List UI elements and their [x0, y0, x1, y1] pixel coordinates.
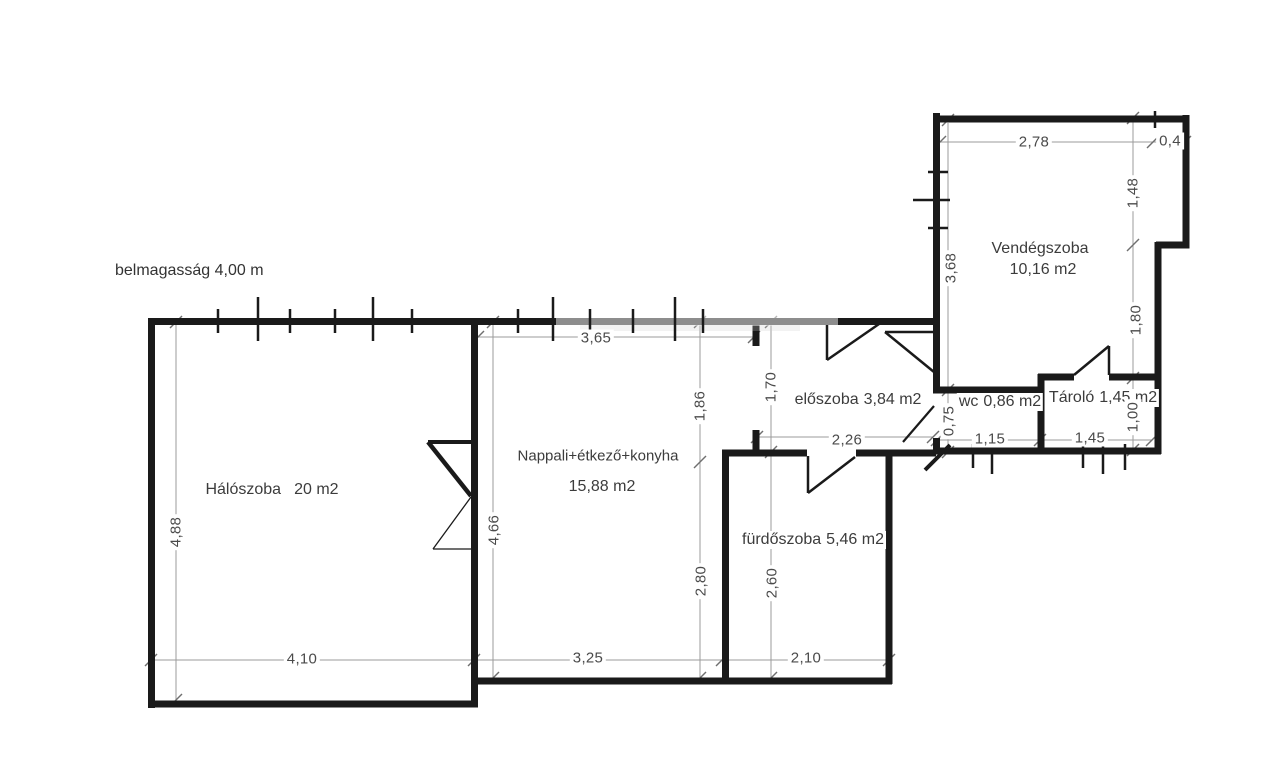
room-label-wc: wc 0,86 m2: [957, 393, 1043, 411]
dim-furdo-width: 2,10: [788, 650, 824, 667]
room-label-eloszoba: előszoba 3,84 m2: [793, 391, 924, 409]
room-name: Tároló: [1049, 389, 1094, 407]
dim-nappali-upper-height: 1,86: [692, 388, 709, 424]
dim-nappali-lower-height: 2,80: [693, 563, 710, 599]
room-name: előszoba: [795, 391, 859, 409]
dim-nappali-bottom-width: 3,25: [570, 650, 606, 667]
room-area: 10,16 m2: [1010, 261, 1077, 279]
dim-eloszoba-width: 2,26: [829, 432, 865, 449]
room-area: 5,46 m2: [826, 531, 884, 549]
room-area: 15,88 m2: [569, 478, 636, 496]
dim-vendeg-top-width: 2,78: [1016, 134, 1052, 151]
room-name: wc: [959, 393, 979, 411]
room-label-furdoszoba: fürdőszoba 5,46 m2: [740, 531, 886, 549]
dim-tarolo-height: 1,00: [1125, 399, 1142, 435]
dim-vendeg-notch-width: 0,4: [1156, 133, 1184, 150]
dim-halo-width: 4,10: [284, 651, 320, 668]
room-area: 20 m2: [294, 481, 338, 499]
dim-furdo-height: 2,60: [764, 565, 781, 601]
door-furdoszoba: [808, 456, 855, 493]
dim-tarolo-width: 1,45: [1072, 430, 1108, 447]
ceiling-height-note: belmagasság 4,00 m: [115, 262, 264, 280]
room-name: Nappali+étkező+konyha: [518, 448, 679, 465]
room-label-haloszoba: Hálószoba 20 m2: [203, 481, 340, 499]
dim-wc-height: 0,75: [941, 403, 958, 439]
dim-nappali-height: 4,66: [486, 512, 503, 548]
dim-halo-height: 4,88: [168, 514, 185, 550]
dim-wc-width: 1,15: [972, 431, 1008, 448]
room-area-nappali: 15,88 m2: [567, 478, 638, 496]
dim-vendeg-right-upper: 1,48: [1125, 175, 1142, 211]
room-name: Vendégszoba: [992, 240, 1089, 258]
room-area-vendegszoba: 10,16 m2: [1008, 261, 1079, 279]
dim-nappali-top-width: 3,65: [578, 330, 614, 347]
floor-plan: belmagasság 4,00 m Hálószoba 20 m2 Nappa…: [0, 0, 1280, 778]
room-label-nappali: Nappali+étkező+konyha: [516, 448, 681, 465]
wall-ticks: [218, 111, 1155, 474]
watermark-smudge: [556, 312, 838, 326]
room-label-vendegszoba: Vendégszoba: [990, 240, 1091, 258]
room-name: Hálószoba: [205, 481, 281, 499]
room-label-tarolo: Tároló 1,45 m2: [1047, 389, 1159, 407]
door-haloszoba: [428, 442, 471, 549]
room-area: 0,86 m2: [983, 393, 1041, 411]
door-eloszoba-entry: [827, 324, 879, 360]
room-name: fürdőszoba: [742, 531, 821, 549]
room-area: 3,84 m2: [864, 391, 922, 409]
dim-vendeg-left-height: 3,68: [943, 250, 960, 286]
dim-eloszoba-height: 1,70: [763, 369, 780, 405]
door-tarolo: [1074, 346, 1109, 375]
dim-vendeg-right-lower: 1,80: [1128, 302, 1145, 338]
door-vendegszoba: [885, 332, 934, 372]
